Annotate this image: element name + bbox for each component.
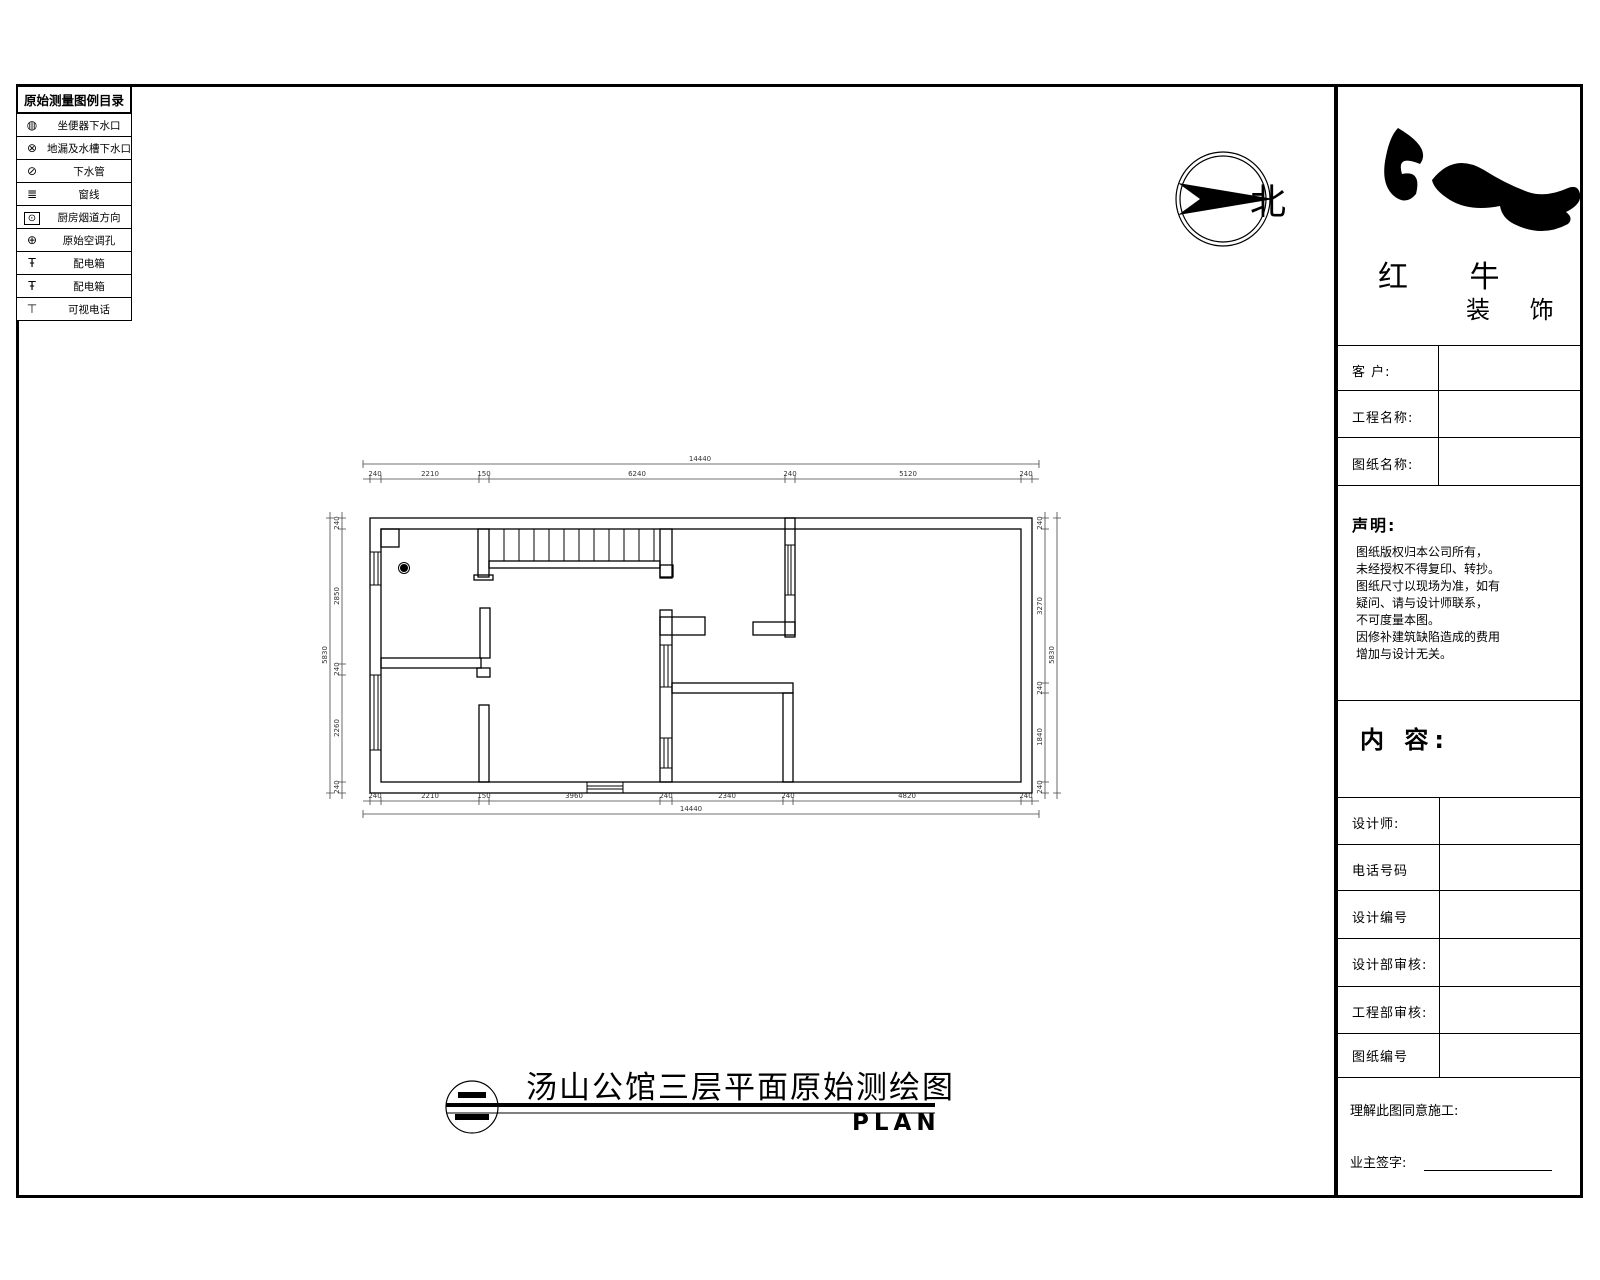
title-block: 红 牛 装 饰 客 户: 工程名称: 图纸名称: 声明: 图纸版权归本公司所有，…: [1338, 84, 1583, 1196]
svg-text:150: 150: [477, 792, 490, 800]
designer-label: 设计师:: [1352, 813, 1399, 832]
svg-text:14440: 14440: [680, 805, 702, 813]
window-symbols: [370, 545, 795, 793]
svg-text:5830: 5830: [1048, 646, 1056, 664]
project-name-label: 工程名称:: [1352, 407, 1413, 426]
svg-text:2210: 2210: [421, 792, 439, 800]
stair-treads: [504, 529, 654, 561]
svg-text:2210: 2210: [421, 470, 439, 478]
svg-text:240: 240: [1019, 792, 1032, 800]
svg-text:2340: 2340: [718, 792, 736, 800]
statement-text: 图纸版权归本公司所有， 未经授权不得复印、转抄。 图纸尺寸以现场为准，如有 疑问…: [1356, 544, 1571, 663]
floor-drain-symbol: [399, 563, 410, 574]
svg-text:240: 240: [1036, 780, 1044, 793]
svg-text:3270: 3270: [1036, 597, 1044, 615]
client-label: 客 户:: [1352, 361, 1391, 380]
svg-text:240: 240: [783, 470, 796, 478]
svg-text:4820: 4820: [898, 792, 916, 800]
svg-text:6240: 6240: [628, 470, 646, 478]
sheet-number-label: 图纸编号: [1352, 1046, 1408, 1065]
logo-text-line2: 装 饰: [1466, 290, 1570, 325]
drawing-name-label: 图纸名称:: [1352, 454, 1413, 473]
svg-text:240: 240: [368, 792, 381, 800]
svg-text:2260: 2260: [333, 719, 341, 737]
content-label: 内 容:: [1360, 720, 1450, 755]
svg-text:14440: 14440: [689, 455, 711, 463]
svg-text:240: 240: [333, 516, 341, 529]
svg-text:240: 240: [781, 792, 794, 800]
dimension-labels: 14440 240 2210 150 6240 240 5120 240 240…: [321, 455, 1056, 813]
design-review-label: 设计部审核:: [1352, 954, 1427, 973]
phone-label: 电话号码: [1352, 860, 1408, 879]
svg-text:240: 240: [333, 662, 341, 675]
approval-label: 理解此图同意施工:: [1350, 1100, 1458, 1119]
floor-plan-walls: [370, 518, 1032, 793]
svg-text:1840: 1840: [1036, 728, 1044, 746]
svg-text:240: 240: [1036, 681, 1044, 694]
svg-text:150: 150: [477, 470, 490, 478]
svg-text:5830: 5830: [321, 646, 329, 664]
statement-title: 声明:: [1352, 512, 1396, 536]
drawing-sheet: 原始测量图例目录 ◍ 坐便器下水口 ⊗ 地漏及水槽下水口 ⊘ 下水管 ≣ 窗线 …: [0, 0, 1600, 1280]
design-number-label: 设计编号: [1352, 907, 1408, 926]
drawing-title: 汤山公馆三层平面原始测绘图: [526, 1062, 955, 1107]
drawing-title-en: PLAN: [852, 1110, 941, 1136]
svg-text:5120: 5120: [899, 470, 917, 478]
owner-signature-label: 业主签字:: [1350, 1152, 1406, 1171]
svg-text:3960: 3960: [565, 792, 583, 800]
svg-text:240: 240: [659, 792, 672, 800]
svg-text:240: 240: [368, 470, 381, 478]
signature-line: [1424, 1170, 1552, 1171]
svg-text:240: 240: [1019, 470, 1032, 478]
dimension-lines: [326, 460, 1061, 818]
engineering-review-label: 工程部审核:: [1352, 1002, 1427, 1021]
svg-text:240: 240: [333, 780, 341, 793]
north-label: 北: [1250, 182, 1286, 223]
svg-text:240: 240: [1036, 516, 1044, 529]
svg-text:2850: 2850: [333, 587, 341, 605]
